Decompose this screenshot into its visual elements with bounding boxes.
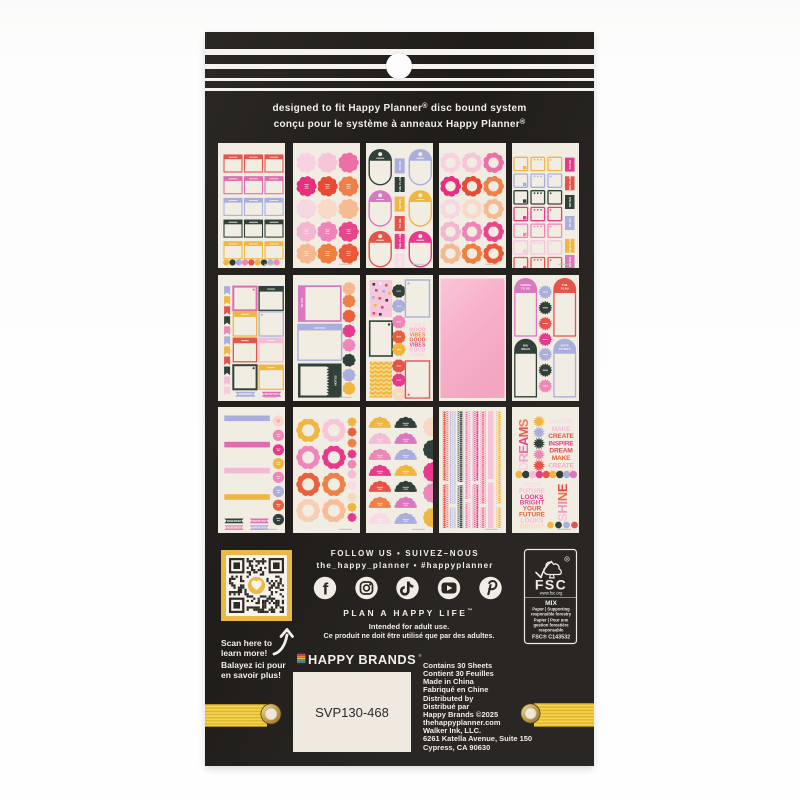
svg-text:DREAM: DREAM xyxy=(549,419,573,426)
svg-text:REMEMBER: REMEMBER xyxy=(238,393,252,396)
svg-text:TO DO: TO DO xyxy=(568,218,572,228)
svg-text:TO DO: TO DO xyxy=(521,286,531,290)
svg-text:IMPORTANT: IMPORTANT xyxy=(252,520,267,523)
svg-text:NOTES: NOTES xyxy=(568,257,572,267)
svg-text:MAKE: MAKE xyxy=(552,455,571,462)
svg-text:MAKE: MAKE xyxy=(552,426,571,433)
svg-text:SHINE: SHINE xyxy=(555,483,570,522)
svg-text:DREAM: DREAM xyxy=(549,448,573,455)
svg-text:HAPPY BRANDS: HAPPY BRANDS xyxy=(308,652,416,667)
svg-text:BRIGHT: BRIGHT xyxy=(520,523,545,530)
svg-text:Papier | Pour une: Papier | Pour une xyxy=(534,618,569,623)
svg-text:FSC® C143532: FSC® C143532 xyxy=(532,634,570,641)
svg-text:REMEMBER: REMEMBER xyxy=(227,527,241,530)
svg-text:NOTES: NOTES xyxy=(314,326,325,330)
svg-text:TO SELF: TO SELF xyxy=(559,347,571,351)
svg-text:TO DO: TO DO xyxy=(568,159,572,169)
svg-text:www.fsc.org: www.fsc.org xyxy=(540,591,563,596)
svg-text:NOTES: NOTES xyxy=(398,256,402,266)
svg-text:PLAN: PLAN xyxy=(561,286,569,290)
svg-text:f: f xyxy=(323,580,329,599)
svg-text:THE PLAN: THE PLAN xyxy=(398,234,402,249)
svg-text:CREATE: CREATE xyxy=(548,462,574,469)
svg-text:responsible forestry: responsible forestry xyxy=(531,612,572,617)
svg-text:MIX: MIX xyxy=(545,600,557,607)
svg-text:TO DO: TO DO xyxy=(398,161,402,171)
svg-text:THE PLAN: THE PLAN xyxy=(568,238,572,253)
svg-text:REMEMBER: REMEMBER xyxy=(227,520,241,523)
svg-text:TO DO: TO DO xyxy=(398,218,402,228)
svg-text:responsable: responsable xyxy=(539,628,564,633)
svg-text:Paper | Supporting: Paper | Supporting xyxy=(532,607,570,612)
svg-text:®: ® xyxy=(419,653,422,658)
svg-text:THE PLAN: THE PLAN xyxy=(568,176,572,191)
svg-text:TO DO: TO DO xyxy=(300,298,304,308)
svg-text:THE PLAN: THE PLAN xyxy=(398,177,402,192)
svg-text:NOTES: NOTES xyxy=(568,197,572,207)
svg-text:NOTES: NOTES xyxy=(334,375,338,385)
svg-text:INSPIRE: INSPIRE xyxy=(549,440,575,447)
svg-text:IMPORTANT: IMPORTANT xyxy=(264,393,279,396)
svg-text:DREAMS: DREAMS xyxy=(516,418,531,471)
svg-text:NOTES: NOTES xyxy=(398,199,402,209)
svg-text:IDEAS: IDEAS xyxy=(521,347,530,351)
svg-text:VIBES: VIBES xyxy=(409,353,426,359)
svg-text:gestion forestière: gestion forestière xyxy=(533,623,569,628)
svg-text:CREATE: CREATE xyxy=(548,433,574,440)
